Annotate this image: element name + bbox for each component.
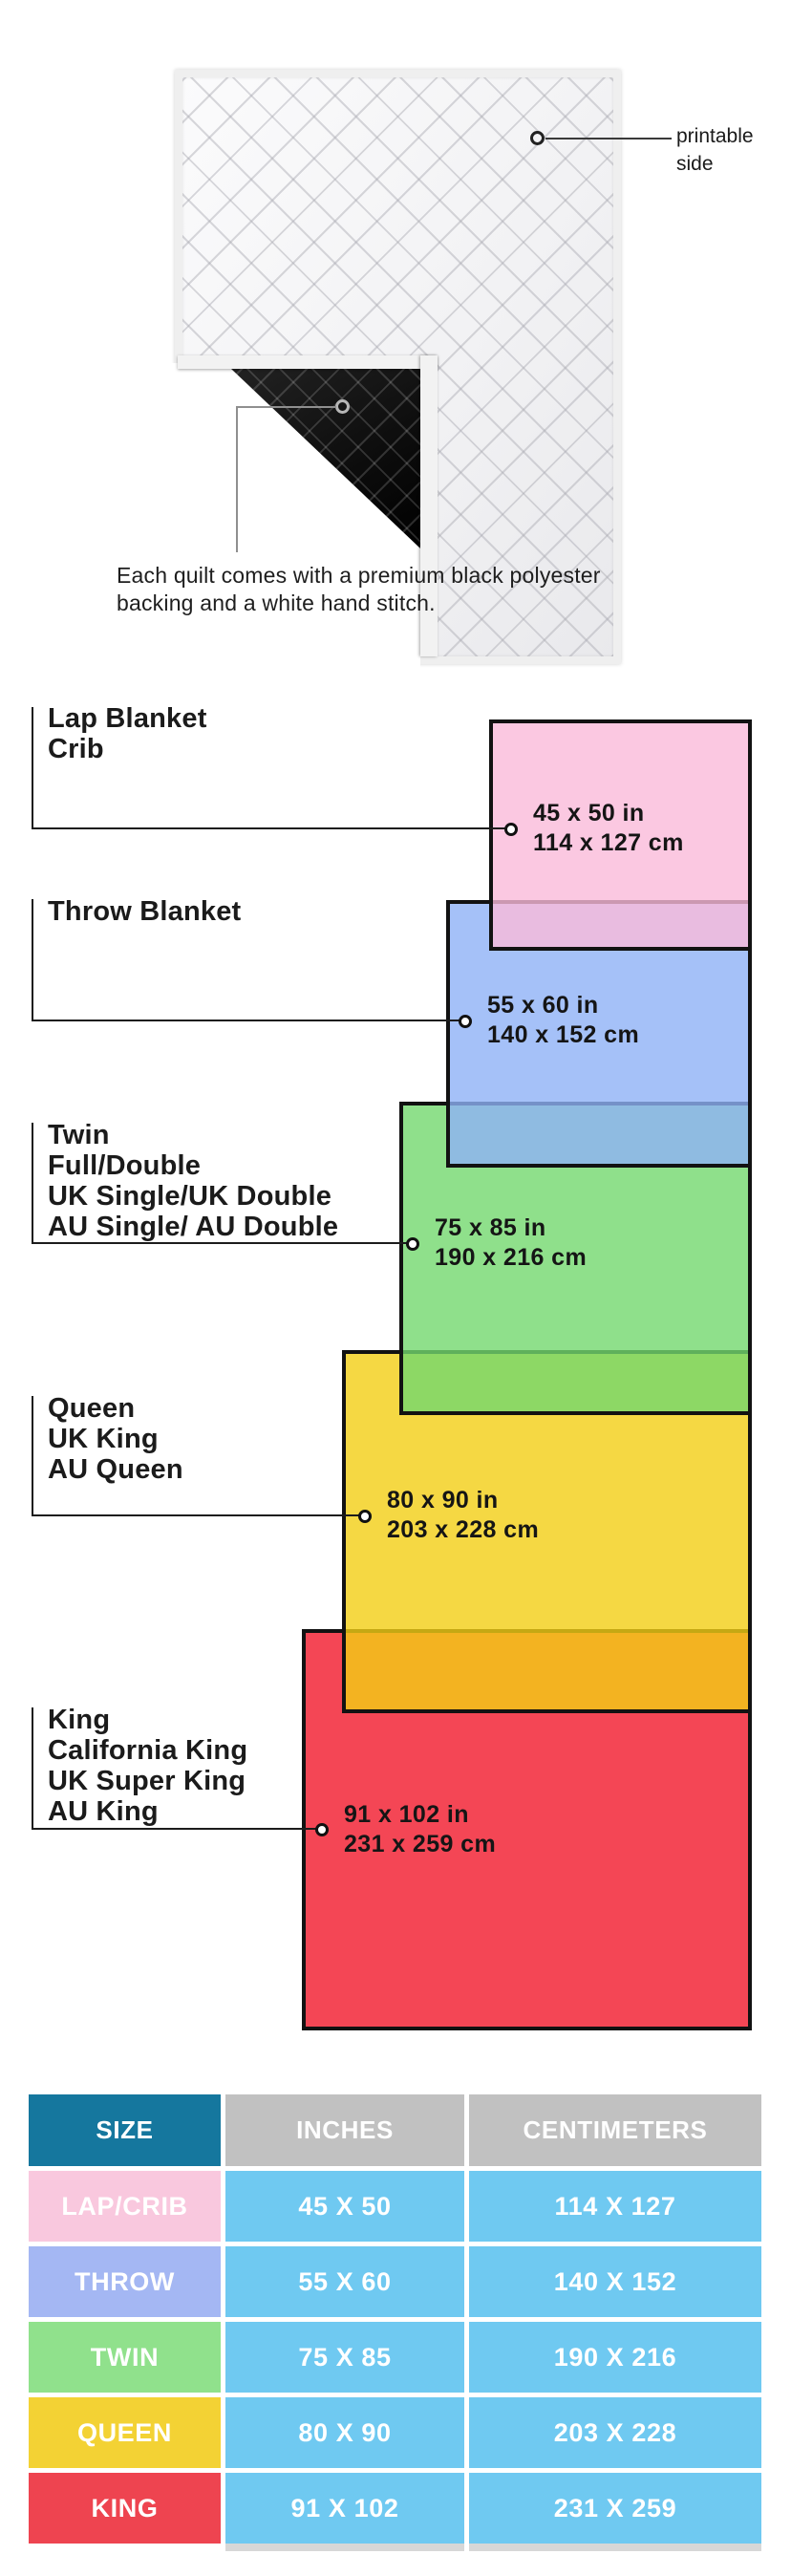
label-line: Twin [48, 1120, 338, 1150]
dim-cm: 140 x 152 cm [487, 1020, 639, 1050]
dim-cm: 203 x 228 cm [387, 1515, 539, 1545]
label-line: Full/Double [48, 1150, 338, 1181]
leader-twin-horizontal [32, 1242, 407, 1244]
table-row-lap-in: 45 X 50 [225, 2171, 464, 2242]
dim-cm: 231 x 259 cm [344, 1830, 496, 1859]
label-line: AU Queen [48, 1454, 183, 1485]
backing-caption-line2: backing and a white hand stitch. [117, 590, 601, 617]
table-header-centimeters: CENTIMETERS [469, 2094, 761, 2166]
label-line: Crib [48, 734, 207, 764]
label-line: UK Single/UK Double [48, 1181, 338, 1212]
table-row-king-in: 91 X 102 [225, 2473, 464, 2544]
dim-text-queen: 80 x 90 in 203 x 228 cm [387, 1486, 539, 1545]
label-lap-crib: Lap Blanket Crib [48, 703, 207, 764]
leader-queen-horizontal [32, 1514, 359, 1516]
dim-inches: 45 x 50 in [533, 799, 684, 828]
table-row-lap-size: LAP/CRIB [29, 2171, 221, 2242]
label-king: King California King UK Super King AU Ki… [48, 1705, 247, 1827]
leader-lap-vertical [32, 707, 33, 829]
label-line: AU King [48, 1796, 247, 1827]
table-header-inches: INCHES [225, 2094, 464, 2166]
table-row-queen-cm: 203 X 228 [469, 2397, 761, 2468]
dim-text-king: 91 x 102 in 231 x 259 cm [344, 1800, 496, 1859]
dim-text-twin: 75 x 85 in 190 x 216 cm [435, 1213, 587, 1273]
printable-side-label-line1: printable [676, 122, 754, 150]
printable-side-label-line2: side [676, 150, 754, 178]
table-row-queen-size: QUEEN [29, 2397, 221, 2468]
dim-cm: 114 x 127 cm [533, 828, 684, 858]
label-line: UK Super King [48, 1766, 247, 1796]
leader-king-vertical [32, 1707, 33, 1830]
dim-marker-lap-icon [504, 823, 518, 836]
table-shadow-inches [225, 2544, 464, 2551]
quilt-stitch-edge-horizontal [178, 355, 438, 369]
leader-queen-vertical [32, 1396, 33, 1516]
table-row-twin-in: 75 X 85 [225, 2322, 464, 2393]
table-header-size: SIZE [29, 2094, 221, 2166]
backing-leader-line-vertical [236, 406, 238, 552]
backing-leader-line-horizontal [237, 406, 336, 408]
table-row-throw-in: 55 X 60 [225, 2246, 464, 2317]
backing-marker-icon [335, 399, 350, 414]
label-queen: Queen UK King AU Queen [48, 1393, 183, 1485]
label-line: UK King [48, 1424, 183, 1454]
label-twin: Twin Full/Double UK Single/UK Double AU … [48, 1120, 338, 1242]
printable-side-leader-line [545, 138, 672, 140]
label-line: Throw Blanket [48, 896, 241, 927]
leader-lap-horizontal [32, 827, 506, 829]
infographic-stage: printable side Each quilt comes with a p… [0, 0, 791, 2576]
label-line: AU Single/ AU Double [48, 1212, 338, 1242]
size-table: SIZE INCHES CENTIMETERS LAP/CRIB 45 X 50… [29, 2094, 761, 2544]
dim-inches: 75 x 85 in [435, 1213, 587, 1243]
dim-marker-twin-icon [406, 1237, 419, 1251]
table-row-throw-size: THROW [29, 2246, 221, 2317]
leader-king-horizontal [32, 1828, 316, 1830]
dim-marker-king-icon [315, 1823, 329, 1836]
table-row-queen-in: 80 X 90 [225, 2397, 464, 2468]
leader-throw-vertical [32, 899, 33, 1020]
table-shadow-centimeters [469, 2544, 761, 2551]
label-line: Queen [48, 1393, 183, 1424]
label-line: California King [48, 1735, 247, 1766]
label-throw: Throw Blanket [48, 896, 241, 927]
printable-side-label: printable side [676, 122, 754, 178]
backing-caption-line1: Each quilt comes with a premium black po… [117, 562, 601, 590]
table-row-throw-cm: 140 X 152 [469, 2246, 761, 2317]
printable-side-marker-icon [530, 131, 545, 145]
leader-throw-horizontal [32, 1020, 460, 1021]
label-line: King [48, 1705, 247, 1735]
dim-text-lap: 45 x 50 in 114 x 127 cm [533, 799, 684, 858]
label-line: Lap Blanket [48, 703, 207, 734]
leader-twin-vertical [32, 1123, 33, 1244]
dim-inches: 80 x 90 in [387, 1486, 539, 1515]
dim-inches: 91 x 102 in [344, 1800, 496, 1830]
table-row-king-size: KING [29, 2473, 221, 2544]
table-row-lap-cm: 114 X 127 [469, 2171, 761, 2242]
dim-inches: 55 x 60 in [487, 991, 639, 1020]
table-row-king-cm: 231 X 259 [469, 2473, 761, 2544]
backing-caption: Each quilt comes with a premium black po… [117, 562, 601, 617]
table-row-twin-cm: 190 X 216 [469, 2322, 761, 2393]
dim-text-throw: 55 x 60 in 140 x 152 cm [487, 991, 639, 1050]
table-row-twin-size: TWIN [29, 2322, 221, 2393]
dim-marker-throw-icon [459, 1015, 472, 1028]
dim-cm: 190 x 216 cm [435, 1243, 587, 1273]
dim-marker-queen-icon [358, 1510, 372, 1523]
